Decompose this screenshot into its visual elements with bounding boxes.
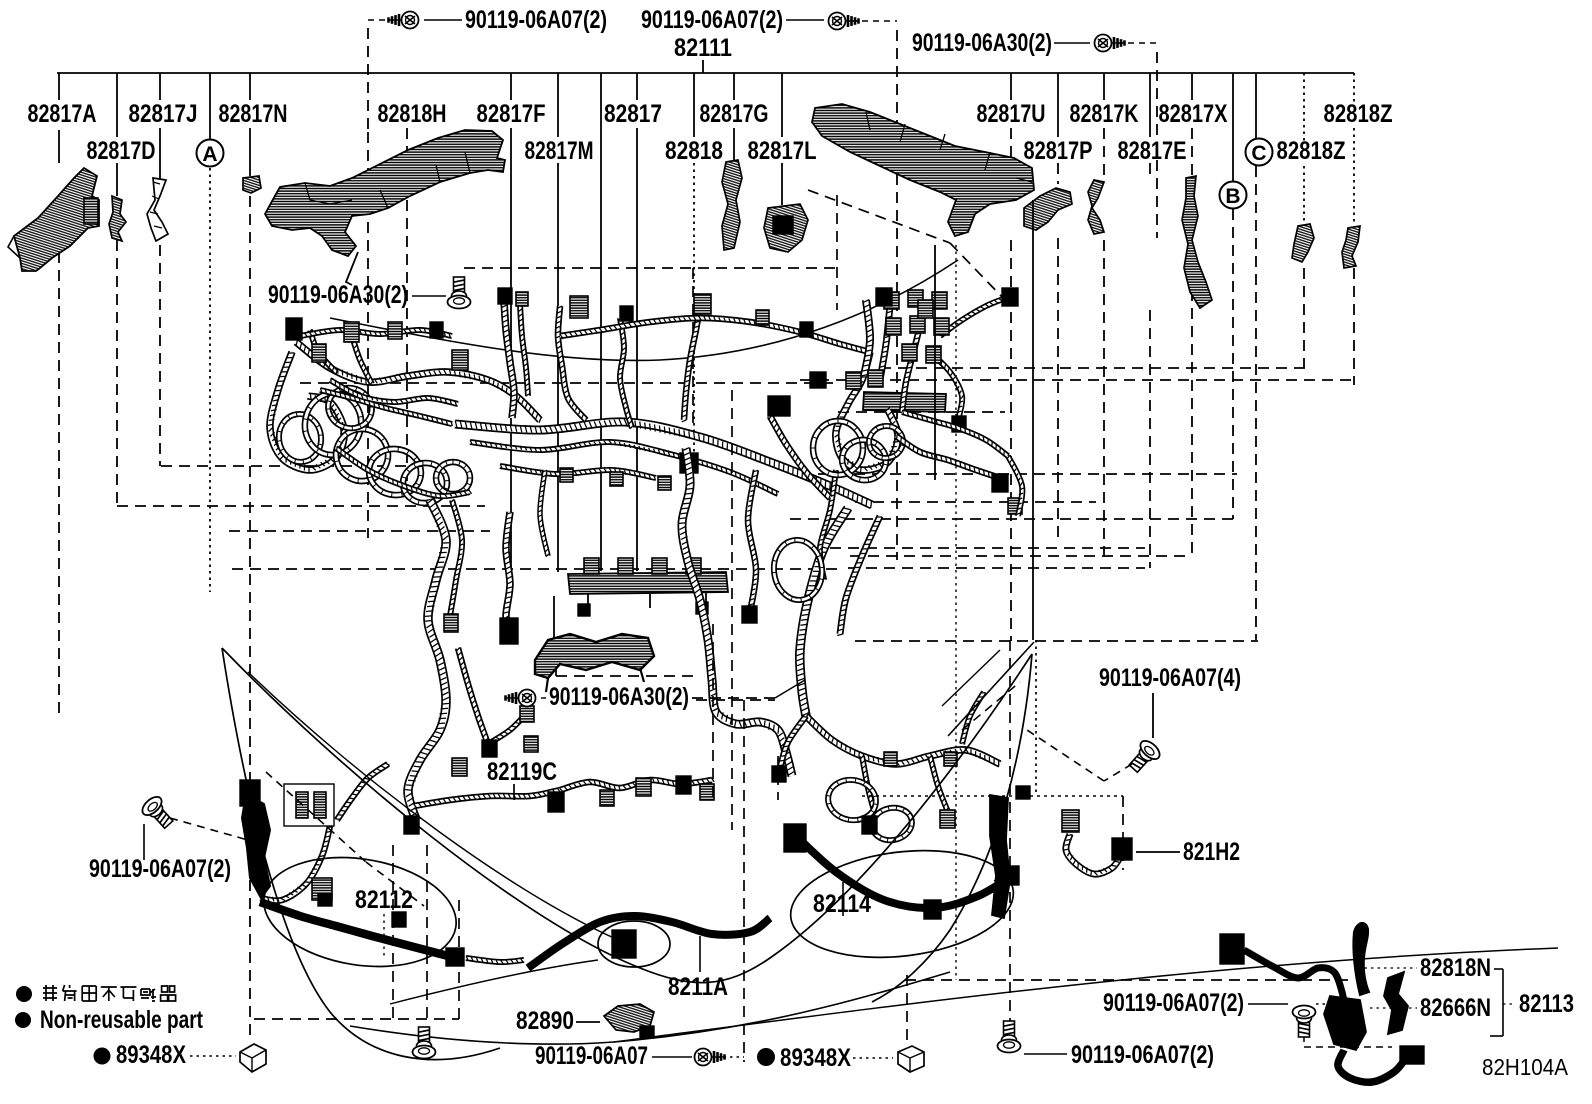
svg-text:82817P: 82817P — [1024, 137, 1093, 165]
svg-text:90119-06A07: 90119-06A07 — [535, 1042, 648, 1070]
svg-text:82817E: 82817E — [1118, 137, 1187, 165]
svg-text:82818: 82818 — [665, 137, 723, 165]
svg-text:82817G: 82817G — [700, 100, 769, 128]
svg-text:89348X: 89348X — [116, 1041, 186, 1069]
svg-text:82H104A: 82H104A — [1482, 1054, 1569, 1080]
svg-text:82112: 82112 — [355, 886, 413, 914]
svg-text:82817A: 82817A — [28, 100, 97, 128]
svg-text:C: C — [1251, 142, 1266, 165]
svg-text:90119-06A07(2): 90119-06A07(2) — [89, 855, 231, 883]
svg-text:90119-06A07(2): 90119-06A07(2) — [465, 6, 607, 34]
svg-text:90119-06A07(2): 90119-06A07(2) — [1071, 1041, 1214, 1069]
svg-text:82817L: 82817L — [748, 137, 817, 165]
svg-text:82817F: 82817F — [477, 100, 546, 128]
svg-text:821H2: 821H2 — [1183, 838, 1240, 866]
svg-text:82818H: 82818H — [378, 100, 447, 128]
svg-text:82817M: 82817M — [525, 137, 594, 165]
svg-text:B: B — [1225, 185, 1240, 208]
svg-text:90119-06A30(2): 90119-06A30(2) — [268, 281, 408, 309]
svg-text:82817U: 82817U — [977, 100, 1046, 128]
svg-text:82666N: 82666N — [1420, 994, 1491, 1022]
svg-text:82114: 82114 — [813, 890, 871, 918]
svg-text:82817: 82817 — [604, 100, 662, 128]
svg-text:82817N: 82817N — [219, 100, 288, 128]
svg-text:90119-06A30(2): 90119-06A30(2) — [912, 29, 1052, 57]
svg-text:82111: 82111 — [674, 34, 732, 62]
svg-text:82119C: 82119C — [487, 758, 557, 786]
svg-text:82818N: 82818N — [1420, 954, 1491, 982]
svg-text:82817D: 82817D — [87, 137, 156, 165]
svg-text:82817X: 82817X — [1159, 100, 1228, 128]
svg-text:90119-06A07(4): 90119-06A07(4) — [1099, 664, 1241, 692]
svg-text:82890: 82890 — [516, 1007, 574, 1035]
svg-text:82113: 82113 — [1519, 990, 1574, 1018]
svg-text:Non-reusable part: Non-reusable part — [40, 1006, 204, 1034]
svg-text:82817J: 82817J — [129, 100, 198, 128]
svg-text:8211A: 8211A — [668, 973, 728, 1001]
svg-text:82817K: 82817K — [1070, 100, 1139, 128]
svg-text:82818Z: 82818Z — [1324, 100, 1393, 128]
svg-text:90119-06A30(2): 90119-06A30(2) — [549, 683, 689, 711]
svg-text:89348X: 89348X — [780, 1044, 851, 1072]
svg-text:90119-06A07(2): 90119-06A07(2) — [641, 6, 783, 34]
svg-text:A: A — [202, 143, 217, 166]
svg-text:82818Z: 82818Z — [1277, 137, 1346, 165]
svg-text:90119-06A07(2): 90119-06A07(2) — [1103, 989, 1244, 1017]
